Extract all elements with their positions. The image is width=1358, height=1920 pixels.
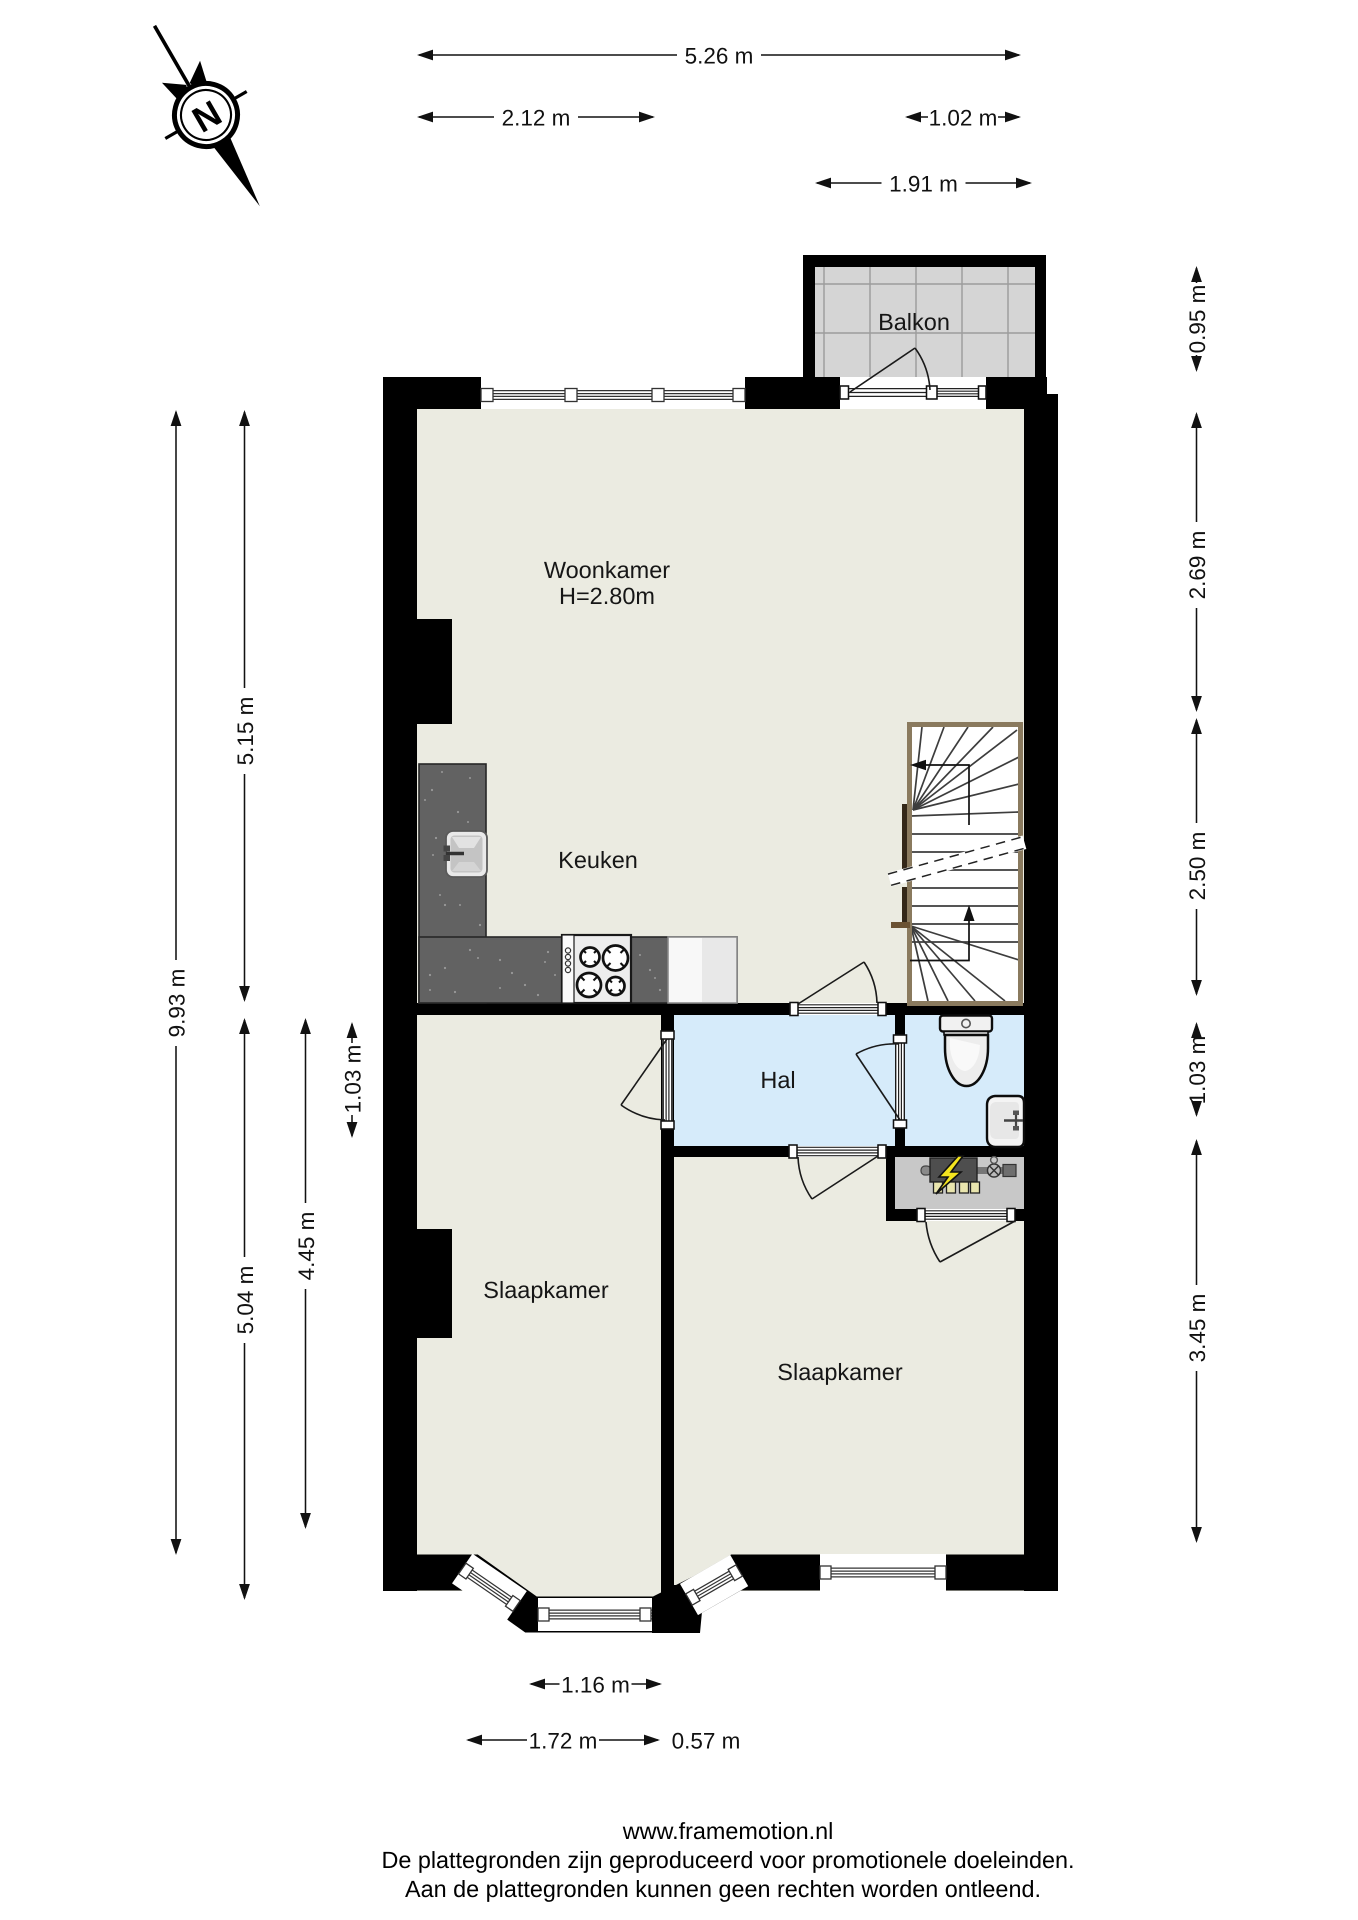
svg-text:4.45 m: 4.45 m: [294, 1212, 319, 1281]
svg-text:5.04 m: 5.04 m: [233, 1266, 258, 1335]
svg-text:De plattegronden zijn geproduc: De plattegronden zijn geproduceerd voor …: [381, 1847, 1074, 1873]
svg-text:Balkon: Balkon: [878, 309, 950, 335]
svg-text:Keuken: Keuken: [558, 847, 638, 873]
svg-text:0.57 m: 0.57 m: [672, 1729, 741, 1754]
svg-text:Hal: Hal: [760, 1067, 795, 1093]
svg-text:www.framemotion.nl: www.framemotion.nl: [622, 1818, 834, 1844]
svg-text:1.03 m: 1.03 m: [341, 1045, 366, 1114]
svg-text:3.45 m: 3.45 m: [1185, 1294, 1210, 1363]
svg-text:Slaapkamer: Slaapkamer: [777, 1359, 903, 1385]
svg-text:9.93 m: 9.93 m: [165, 969, 190, 1038]
svg-text:1.16 m: 1.16 m: [561, 1673, 630, 1698]
svg-text:Slaapkamer: Slaapkamer: [483, 1277, 609, 1303]
svg-text:1.72 m: 1.72 m: [529, 1729, 598, 1754]
svg-text:1.03 m: 1.03 m: [1185, 1036, 1210, 1105]
svg-text:Woonkamer: Woonkamer: [544, 557, 670, 583]
svg-text:2.12 m: 2.12 m: [502, 106, 571, 131]
svg-text:0.95 m: 0.95 m: [1185, 285, 1210, 354]
svg-text:5.26 m: 5.26 m: [685, 44, 754, 69]
svg-text:2.50 m: 2.50 m: [1185, 832, 1210, 901]
svg-text:2.69 m: 2.69 m: [1185, 531, 1210, 600]
svg-text:Aan de plattegronden kunnen ge: Aan de plattegronden kunnen geen rechten…: [405, 1876, 1041, 1902]
svg-text:1.91 m: 1.91 m: [889, 172, 958, 197]
svg-text:H=2.80m: H=2.80m: [559, 583, 655, 609]
svg-text:5.15 m: 5.15 m: [233, 697, 258, 766]
svg-text:1.02 m: 1.02 m: [929, 106, 998, 131]
